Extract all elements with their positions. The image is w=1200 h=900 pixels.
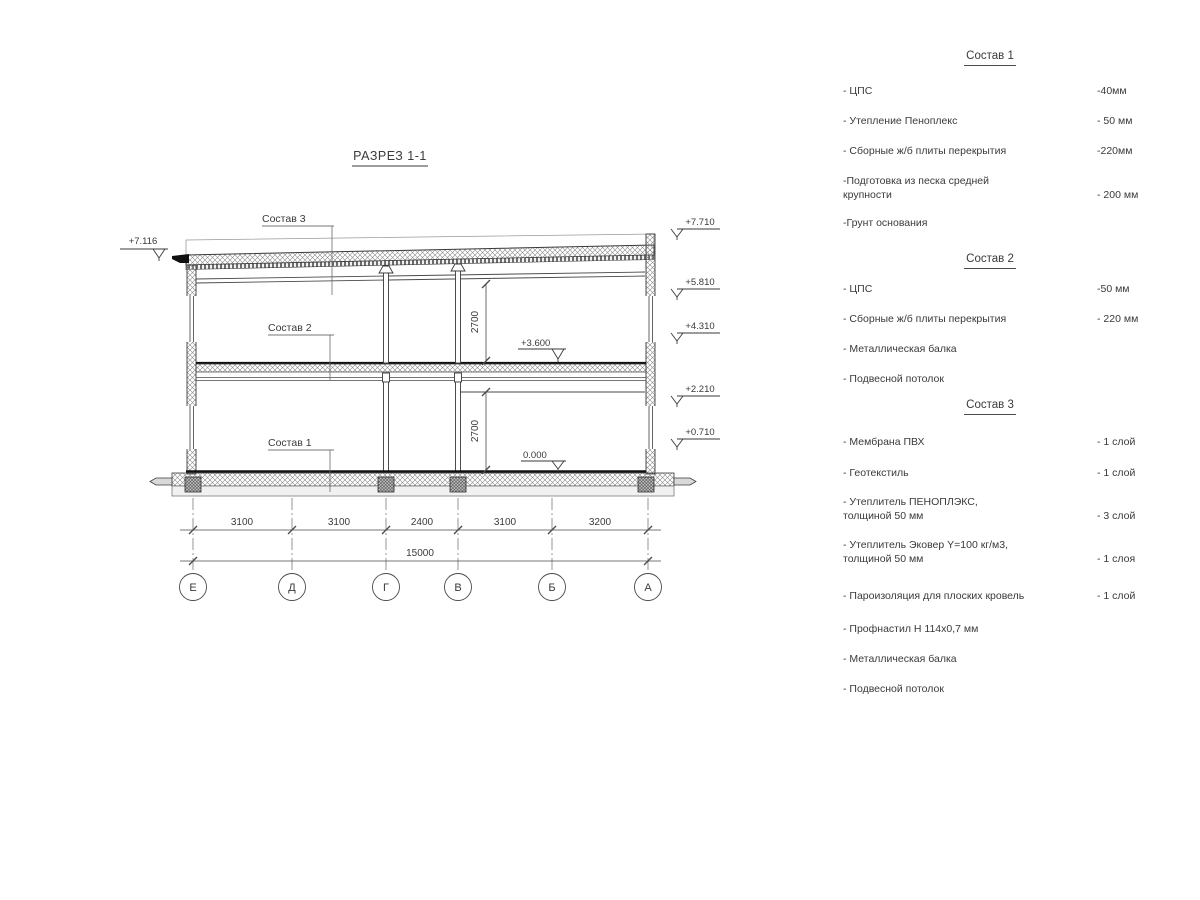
svg-text:3100: 3100	[494, 517, 517, 528]
axis-bubble-v: В	[445, 574, 472, 601]
section-drawing: РАЗРЕЗ 1-1	[0, 0, 790, 660]
roof-drain-icon	[172, 254, 189, 263]
ground-slab	[150, 472, 696, 497]
spec-item-name: - ЦПС	[843, 85, 1093, 99]
level-mark-0710: +0.710	[671, 427, 720, 450]
spec-item-value: - 1 слоя	[1097, 553, 1135, 567]
level-mark-3600: +3.600	[518, 338, 566, 362]
left-apron	[150, 478, 172, 485]
svg-text:Состав 2: Состав 2	[268, 322, 312, 334]
spec-item-name: - Утеплитель ПЕНОПЛЭКС,	[843, 496, 1093, 510]
svg-text:Б: Б	[548, 582, 555, 594]
right-apron	[674, 478, 696, 485]
axis-lines	[193, 498, 648, 574]
spec-item-name: - Мембрана ПВХ	[843, 436, 1093, 450]
svg-text:В: В	[454, 582, 461, 594]
svg-text:+3.600: +3.600	[521, 338, 550, 349]
axis-bubble-d: Д	[279, 574, 306, 601]
spec-item-value: - 1 слой	[1097, 436, 1135, 450]
svg-text:Состав 1: Состав 1	[268, 437, 312, 449]
spec-item-name: - Металлическая балка	[843, 653, 1093, 667]
spec-item-name: - Сборные ж/б плиты перекрытия	[843, 145, 1093, 159]
svg-text:2700: 2700	[470, 419, 481, 442]
spec-item-value: -50 мм	[1097, 283, 1130, 297]
spec-item-name: - Металлическая балка	[843, 343, 1093, 357]
spec-item-name: - Сборные ж/б плиты перекрытия	[843, 313, 1093, 327]
spec-item-name: - Подвесной потолок	[843, 683, 1093, 697]
level-mark-0000: 0.000	[521, 450, 566, 472]
svg-text:+7.710: +7.710	[685, 217, 714, 228]
spec-item-name: - Утеплитель Эковер Y=100 кг/м3,	[843, 539, 1093, 553]
axis-bubble-g: Г	[373, 574, 400, 601]
level-mark-2210: +2.210	[671, 384, 720, 407]
spec-item-name: - ЦПС	[843, 283, 1093, 297]
sostav2-header: Состав 2	[840, 253, 1140, 269]
roof-suspended-ceiling	[196, 272, 645, 283]
dim-height-floor1: 2700	[470, 388, 490, 474]
axis-bubble-e: Е	[180, 574, 207, 601]
spec-item-value: -40мм	[1097, 85, 1127, 99]
spec-item-value: - 200 мм	[1097, 189, 1138, 203]
sheet: РАЗРЕЗ 1-1	[0, 0, 1200, 900]
spec-item-name: - Утепление Пеноплекс	[843, 115, 1093, 129]
svg-text:2400: 2400	[411, 517, 434, 528]
svg-text:Г: Г	[383, 582, 389, 594]
dim-line-segments: 3100 3100 2400 3100 3200	[180, 517, 661, 534]
axis-bubble-b: Б	[539, 574, 566, 601]
spec-item-name: - Пароизоляция для плоских кровель	[843, 590, 1093, 604]
right-wall	[646, 234, 656, 474]
axis-bubbles: Е Д Г В Б А	[180, 574, 662, 601]
spec-item-name: -Грунт основания	[843, 217, 1093, 231]
svg-text:2700: 2700	[470, 310, 481, 333]
specification-panel: Состав 1 - ЦПС -40мм - Утепление Пенопле…	[840, 0, 1160, 900]
dim-line-total: 15000	[180, 548, 661, 565]
axis-bubble-a: А	[635, 574, 662, 601]
spec-item-value: - 50 мм	[1097, 115, 1132, 129]
left-wall	[187, 265, 197, 474]
roof-slab	[172, 245, 654, 270]
svg-text:РАЗРЕЗ 1-1: РАЗРЕЗ 1-1	[353, 149, 427, 163]
drawing-title: РАЗРЕЗ 1-1	[352, 149, 428, 166]
svg-text:+4.310: +4.310	[685, 321, 714, 332]
level-mark-7710: +7.710	[671, 217, 720, 240]
spec-item-value: - 220 мм	[1097, 313, 1138, 327]
spec-item-value: - 1 слой	[1097, 467, 1135, 481]
svg-text:+5.810: +5.810	[685, 277, 714, 288]
level-mark-left-top: +7.116	[120, 236, 168, 261]
svg-text:3200: 3200	[589, 517, 612, 528]
spec-item-name: - Подвесной потолок	[843, 373, 1093, 387]
dim-height-floor2: 2700	[470, 280, 490, 365]
spec-item-name: толщиной 50 мм	[843, 553, 1093, 567]
sostav3-header: Состав 3	[840, 399, 1140, 415]
spec-item-name: -Подготовка из песка средней	[843, 175, 1093, 189]
spec-item-name: толщиной 50 мм	[843, 510, 1093, 524]
floor2-slab	[196, 363, 646, 381]
svg-text:+2.210: +2.210	[685, 384, 714, 395]
svg-text:0.000: 0.000	[523, 450, 547, 461]
svg-text:Е: Е	[189, 582, 196, 594]
svg-text:Состав 3: Состав 3	[262, 213, 306, 225]
svg-text:15000: 15000	[406, 548, 434, 559]
level-mark-4310: +4.310	[671, 321, 720, 344]
svg-text:3100: 3100	[328, 517, 351, 528]
svg-text:+7.116: +7.116	[129, 236, 158, 247]
spec-item-value: - 3 слой	[1097, 510, 1135, 524]
svg-text:+0.710: +0.710	[685, 427, 714, 438]
sostav1-header: Состав 1	[840, 50, 1140, 66]
spec-item-value: - 1 слой	[1097, 590, 1135, 604]
spec-item-name: - Профнастил Н 114х0,7 мм	[843, 623, 1093, 637]
svg-text:А: А	[644, 582, 652, 594]
spec-item-name: - Геотекстиль	[843, 467, 1093, 481]
svg-text:Д: Д	[288, 582, 296, 594]
spec-item-name: крупности	[843, 189, 1093, 203]
level-mark-5810: +5.810	[671, 277, 720, 300]
svg-text:3100: 3100	[231, 517, 254, 528]
spec-item-value: -220мм	[1097, 145, 1132, 159]
